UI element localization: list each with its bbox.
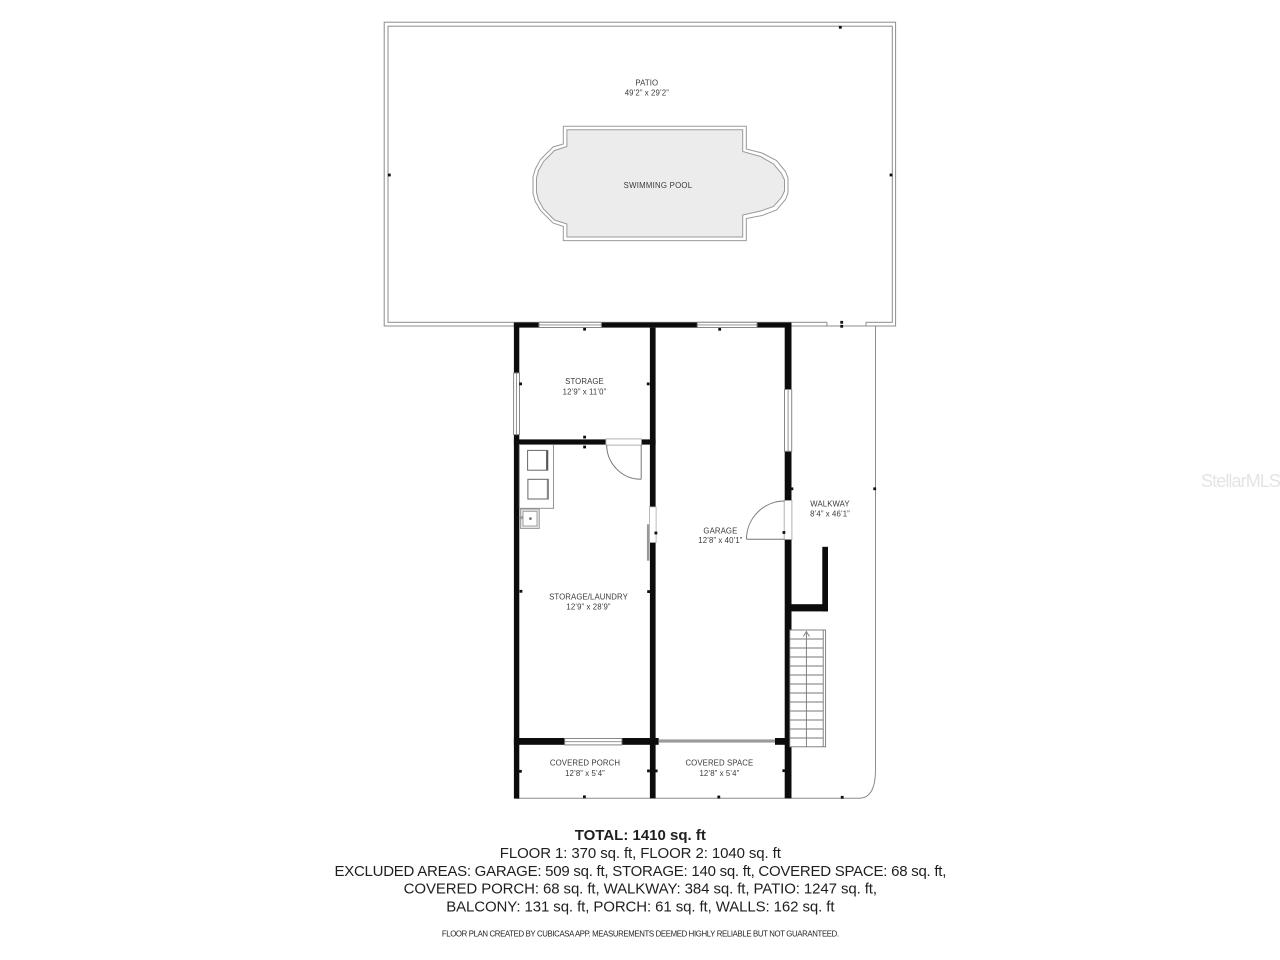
svg-text:FLOOR 1: 370 sq. ft, FLOOR 2:: FLOOR 1: 370 sq. ft, FLOOR 2: 1040 sq. f… — [500, 845, 782, 862]
svg-text:12’9” x 11’0”: 12’9” x 11’0” — [563, 388, 607, 397]
svg-text:COVERED SPACE: COVERED SPACE — [685, 759, 753, 768]
svg-text:8’4” x 46’1”: 8’4” x 46’1” — [810, 510, 850, 519]
svg-text:GARAGE: GARAGE — [703, 527, 737, 536]
svg-text:12’9” x 28’9”: 12’9” x 28’9” — [566, 602, 611, 611]
svg-text:COVERED PORCH: 68 sq. ft, WALK: COVERED PORCH: 68 sq. ft, WALKWAY: 384 s… — [404, 881, 877, 898]
svg-text:TOTAL: 1410 sq. ft: TOTAL: 1410 sq. ft — [575, 827, 706, 844]
svg-text:WALKWAY: WALKWAY — [810, 499, 850, 508]
svg-text:PATIO: PATIO — [635, 79, 658, 88]
svg-text:StellarMLS: StellarMLS — [1201, 471, 1280, 491]
svg-text:12’8” x 5’4”: 12’8” x 5’4” — [700, 769, 740, 778]
svg-text:12’8” x 40’1”: 12’8” x 40’1” — [698, 536, 743, 545]
svg-text:49’2” x 29’2”: 49’2” x 29’2” — [625, 88, 670, 97]
svg-text:STORAGE/LAUNDRY: STORAGE/LAUNDRY — [549, 592, 628, 601]
svg-text:BALCONY: 131 sq. ft, PORCH: 61: BALCONY: 131 sq. ft, PORCH: 61 sq. ft, W… — [446, 899, 835, 916]
svg-text:12’8” x 5’4”: 12’8” x 5’4” — [565, 769, 605, 778]
svg-text:SWIMMING POOL: SWIMMING POOL — [624, 181, 693, 190]
svg-text:EXCLUDED AREAS: GARAGE: 509 sq: EXCLUDED AREAS: GARAGE: 509 sq. ft, STOR… — [334, 863, 946, 880]
svg-text:FLOOR PLAN CREATED BY CUBICASA: FLOOR PLAN CREATED BY CUBICASA APP. MEAS… — [442, 930, 839, 939]
svg-text:STORAGE: STORAGE — [565, 377, 604, 386]
svg-text:COVERED PORCH: COVERED PORCH — [550, 759, 620, 768]
